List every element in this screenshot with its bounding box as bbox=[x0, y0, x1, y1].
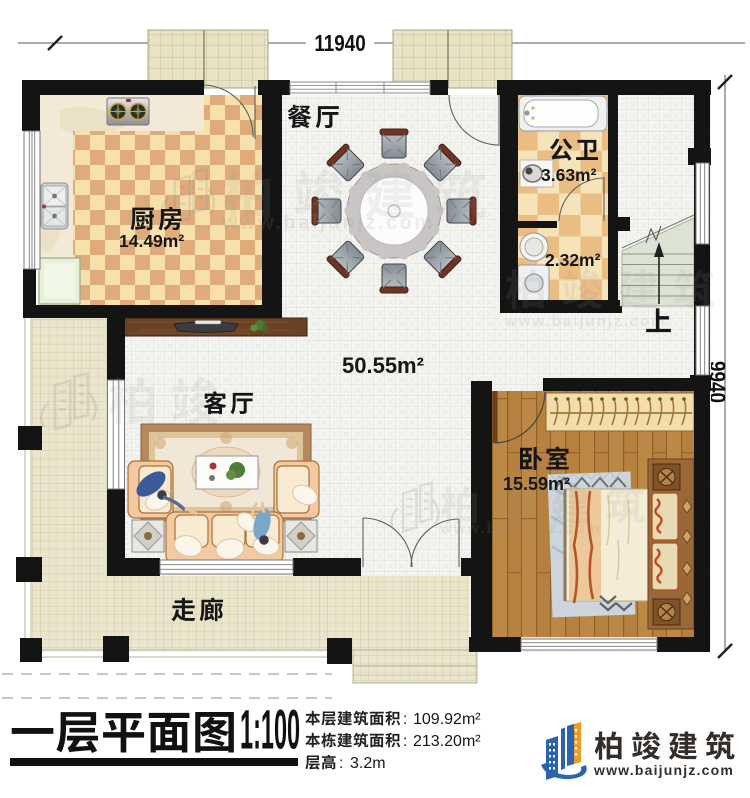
svg-text:3.2m: 3.2m bbox=[350, 755, 386, 772]
svg-text:www.baijunjz.com: www.baijunjz.com bbox=[593, 762, 734, 778]
svg-text:213.20m²: 213.20m² bbox=[413, 733, 481, 750]
svg-text:11940: 11940 bbox=[314, 31, 365, 56]
svg-text:www.baijunjz.com: www.baijunjz.com bbox=[221, 212, 435, 234]
svg-text:109.92m²: 109.92m² bbox=[413, 711, 481, 728]
svg-text:2.32m²: 2.32m² bbox=[545, 250, 601, 270]
svg-text:1:100: 1:100 bbox=[240, 699, 300, 762]
svg-text:15.59m²: 15.59m² bbox=[503, 474, 570, 494]
svg-text::: : bbox=[403, 711, 407, 728]
svg-text:www.baijunjz.com: www.baijunjz.com bbox=[439, 520, 601, 537]
svg-text::: : bbox=[403, 733, 407, 750]
svg-text::: : bbox=[339, 755, 343, 772]
svg-text:3.63m²: 3.63m² bbox=[541, 165, 597, 185]
svg-text:14.49m²: 14.49m² bbox=[119, 231, 184, 251]
svg-text:50.55m²: 50.55m² bbox=[342, 353, 424, 378]
svg-text:www.baijunjz.com: www.baijunjz.com bbox=[504, 313, 666, 330]
